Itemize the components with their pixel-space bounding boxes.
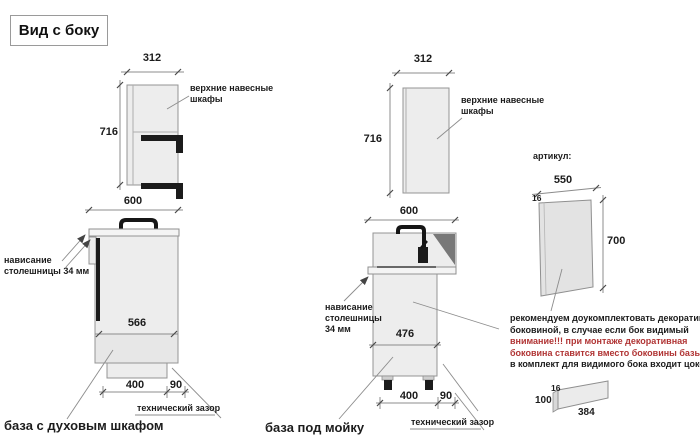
caption-base-oven: база с духовым шкафом <box>4 419 164 433</box>
leg-left <box>382 376 393 380</box>
note-line-1: рекомендуем доукомплектовать декоративно… <box>510 313 700 324</box>
oven-door-strip <box>96 238 100 321</box>
drawing-linework <box>0 0 700 438</box>
label-line: шкафы <box>461 106 544 117</box>
label-line: 34 мм <box>325 324 382 335</box>
dim-panel-thickness: 16 <box>532 194 541 203</box>
note-line-5: в комплект для видимого бока входит цоко… <box>510 359 700 370</box>
note-line-4-warning: боковина ставится вместо боковины базы л… <box>510 348 700 359</box>
caption-base-sink: база под мойку <box>265 421 364 435</box>
countertop-mid <box>368 267 456 274</box>
wall-cabinet-left-shape <box>127 85 183 199</box>
label-line: шкафы <box>190 94 273 105</box>
wall-cabinet-mid-shape <box>403 88 449 193</box>
dim-base-sink-width: 600 <box>389 205 429 217</box>
technical-drawing-page: Вид с боку 312 716 верхние навесные шкаф… <box>0 0 700 438</box>
dim-wall-mid-width: 312 <box>403 53 443 65</box>
page-title: Вид с боку <box>10 15 108 46</box>
label-overhang-mid: нависание столешницы 34 мм <box>325 302 382 335</box>
label-line: верхние навесные <box>190 83 273 94</box>
label-wall-cabinets-mid: верхние навесные шкафы <box>461 95 544 117</box>
note-line-2: боковиной, в случае если бок видимый <box>510 325 689 336</box>
dim-plinth-height: 100 <box>535 395 552 406</box>
dim-panel-width: 550 <box>548 174 578 186</box>
label-article: артикул: <box>533 151 571 162</box>
base-oven-shape <box>89 220 179 378</box>
dim-base-sink-gap: 90 <box>435 390 457 402</box>
label-line: нависание <box>325 302 382 313</box>
dim-plinth-thickness: 16 <box>551 384 560 393</box>
dim-wall-mid-height: 716 <box>360 133 382 145</box>
label-line: столешницы 34 мм <box>4 266 89 277</box>
label-line: нависание <box>4 255 89 266</box>
dim-base-oven-depth: 566 <box>117 317 157 329</box>
dim-base-sink-depth: 476 <box>385 328 425 340</box>
dim-wall-left-width: 312 <box>132 52 172 64</box>
note-line-3-warning: внимание!!! при монтаже декоративная <box>510 336 687 347</box>
dim-base-oven-gap: 90 <box>164 379 188 391</box>
leg-right <box>423 376 434 380</box>
label-overhang-left: нависание столешницы 34 мм <box>4 255 89 277</box>
label-line: столешницы <box>325 313 382 324</box>
base-sink-body <box>373 274 437 376</box>
plinth-left <box>107 363 167 378</box>
countertop-left <box>89 229 179 236</box>
dim-base-oven-plinth: 400 <box>115 379 155 391</box>
dim-base-oven-width: 600 <box>113 195 153 207</box>
dim-wall-left-height: 716 <box>96 126 118 138</box>
dim-panel-height: 700 <box>607 235 625 247</box>
oven-handle <box>121 220 156 229</box>
decor-panel-shape <box>539 200 593 296</box>
dim-plinth-length: 384 <box>578 407 595 418</box>
label-line: верхние навесные <box>461 95 544 106</box>
label-wall-cabinets-left: верхние навесные шкафы <box>190 83 273 105</box>
label-tech-gap-left: технический зазор <box>137 403 220 414</box>
label-tech-gap-mid: технический зазор <box>411 417 494 428</box>
dim-base-sink-plinth: 400 <box>389 390 429 402</box>
